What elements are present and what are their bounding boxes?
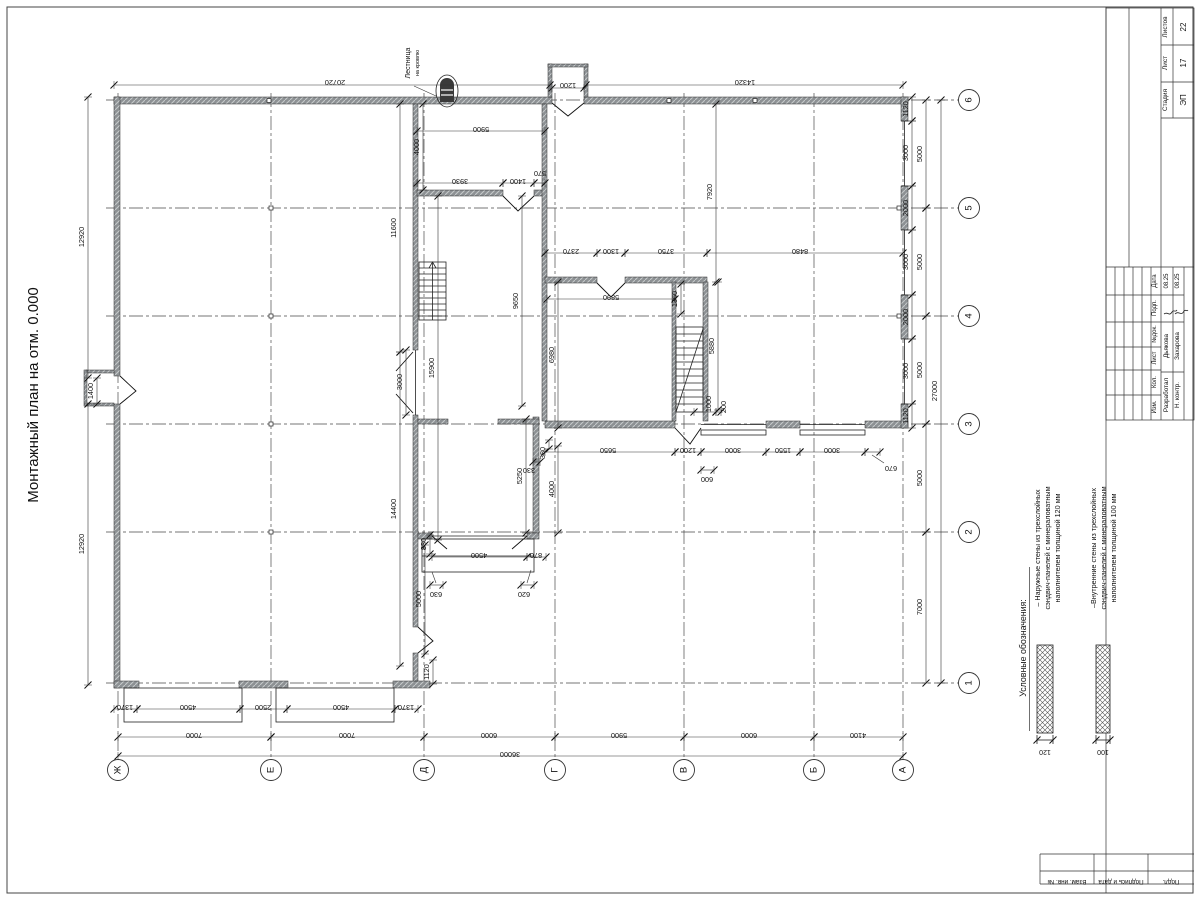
dimension: 7000 <box>915 529 930 687</box>
stamp-row1-date: 08.25 <box>1164 273 1170 289</box>
leader-lines <box>432 455 884 583</box>
dimension: 5880 <box>707 279 722 414</box>
page-title: Монтажный план на отм. 0.000 <box>25 287 42 503</box>
dim-label: 11600 <box>389 218 398 238</box>
axis-bubble-label: Б <box>809 767 820 773</box>
dim-label: 5000 <box>915 362 924 378</box>
strip-podl: Подл. <box>1162 878 1179 885</box>
dimension: 670 <box>862 448 898 473</box>
legend-wall-symbol-outer: 120 <box>1034 645 1057 755</box>
dim-label: 7000 <box>915 599 924 615</box>
dim-label: 9650 <box>511 293 520 309</box>
dim-label: 1300 <box>603 247 619 256</box>
legend-wall-symbol-inner: 100 <box>1093 645 1114 755</box>
dimension: 1370 <box>111 703 141 713</box>
axis-bubble-label: 3 <box>964 421 975 426</box>
dim-label: 2000 <box>901 200 910 216</box>
axis-bubble-label: Д <box>419 766 430 773</box>
axis-bubble-label: Г <box>550 767 561 772</box>
axis-col-В: В <box>674 93 695 781</box>
dim-label: 600 <box>701 475 713 484</box>
dimension: 7920 <box>705 101 720 286</box>
stamp-rev-ndok: №док. <box>1151 325 1158 343</box>
stamp-list-value: 17 <box>1179 58 1188 67</box>
dim-label: 3000 <box>725 446 741 455</box>
stamp-listov-label: Листов <box>1162 16 1169 38</box>
dimension: 2370 <box>542 247 601 257</box>
dim-label: 3000 <box>395 374 404 390</box>
stamp-rev-izm: Изм. <box>1152 400 1158 413</box>
axis-bubble-label: 6 <box>964 97 975 102</box>
strip-vzam-inv: Взам. инв. № <box>1047 878 1086 885</box>
dim-label: 4000 <box>547 481 556 497</box>
dim-label: 20720 <box>325 78 345 87</box>
legend-item2-thickness: 100 <box>1097 748 1109 755</box>
dim-label: 1370 <box>117 703 133 712</box>
dim-label: 12920 <box>77 534 86 554</box>
dim-label: 15900 <box>427 358 436 378</box>
dim-label: 870 <box>530 551 542 560</box>
stamp-row2-role: Н. контр. <box>1174 382 1181 408</box>
stamp-rev-list: Лист <box>1152 351 1158 364</box>
dim-label: 6000 <box>481 731 497 740</box>
dim-label: 3000 <box>901 254 910 270</box>
dimension: 630 <box>427 581 447 599</box>
dim-label: 1360 <box>670 291 679 307</box>
legend-item2-line2: сэндвич-панелей с минераловатным <box>1099 486 1108 609</box>
bottom-attribute-strip: Взам. инв. № Подпись и дата Подл. <box>1040 854 1194 885</box>
dim-label: 8480 <box>792 247 808 256</box>
dimension: 1370 <box>392 703 422 713</box>
stamp-listov-value: 22 <box>1179 22 1188 31</box>
dim-label: 620 <box>518 590 530 599</box>
stamp-stadiya-value: ЭП <box>1179 94 1188 106</box>
porch-and-docks <box>124 539 534 722</box>
dimension: 11600 <box>389 101 404 356</box>
dim-label: 4000 <box>412 139 421 155</box>
dim-label: 670 <box>885 464 897 473</box>
title-block: Листов 22 Лист 17 Стадия ЭП Дата Подп. №… <box>1106 8 1194 420</box>
dimension: 5900 <box>552 731 688 741</box>
legend-item1-thickness: 120 <box>1039 748 1051 755</box>
strip-podpis-data: Подпись и дата <box>1098 878 1144 885</box>
dim-label: 5900 <box>611 731 627 740</box>
dim-label: 2370 <box>563 247 579 256</box>
dim-label: 3000 <box>901 145 910 161</box>
dimension: 1200 <box>672 446 705 456</box>
stamp-row2-name: Захарова <box>1174 332 1181 360</box>
stamp-rev-kol: Кол. <box>1152 376 1158 388</box>
dimension: 4500 <box>284 703 399 713</box>
dim-label: 2500 <box>255 703 271 712</box>
stamp-row2-date: 08.25 <box>1175 273 1181 289</box>
dim-label: 3000 <box>824 446 840 455</box>
axis-col-Б: Б <box>804 93 825 781</box>
axis-bubble-label: 2 <box>964 529 975 534</box>
dim-label: 3930 <box>452 177 468 186</box>
axis-bubble-label: Е <box>266 767 277 773</box>
stamp-row1-name: Дьякова <box>1163 333 1170 358</box>
dim-label: 1120 <box>422 664 431 680</box>
dim-label: 4500 <box>180 703 196 712</box>
walls <box>84 64 908 688</box>
dim-label: 4100 <box>850 731 866 740</box>
dim-label: 200 <box>719 401 728 413</box>
dimension: 27000 <box>930 97 945 687</box>
dim-label: 3750 <box>658 247 674 256</box>
dimension: 5000 <box>915 205 930 320</box>
dim-label: 1370 <box>398 703 414 712</box>
dim-label: 5000 <box>915 146 924 162</box>
dimension: 200 <box>713 401 729 416</box>
stamp-row1-role: Разработал <box>1162 378 1170 413</box>
roof-ladder-note-line1: Лестница <box>405 47 412 78</box>
dimension: 620 <box>518 581 538 599</box>
dimension: 3000 <box>698 446 770 456</box>
dimension: 5250 <box>515 416 530 537</box>
dimension: 5000 <box>915 421 930 536</box>
dimension: 3750 <box>622 247 711 257</box>
staircase-2 <box>676 327 703 412</box>
staircase-1 <box>419 262 446 320</box>
dim-label: 5250 <box>515 468 524 484</box>
stamp-rev-data: Дата <box>1152 274 1158 288</box>
legend-item2-line3: наполнителем толщиной 100 мм <box>1109 493 1118 602</box>
stamp-stadiya-label: Стадия <box>1162 88 1169 111</box>
dimension: 8480 <box>704 247 907 257</box>
dim-label: 380 <box>538 447 547 459</box>
dimension: 2500 <box>237 703 291 713</box>
door-swings <box>120 103 701 653</box>
dimension: 1300 <box>594 247 629 257</box>
dim-label: 1120 <box>901 408 910 424</box>
dimension: 3930 <box>414 177 507 187</box>
dim-label: 5000 <box>915 254 924 270</box>
dim-label: 5000 <box>915 470 924 486</box>
dimension: 4100 <box>811 731 907 741</box>
dimension: 5900 <box>414 125 549 135</box>
dimension: 12920 <box>77 401 92 689</box>
axis-bubble-label: А <box>898 766 909 773</box>
dim-label: 570 <box>534 169 546 178</box>
dimension: 15900 <box>427 193 442 544</box>
drawing-sheet: ЖЕДГВБА654321 <box>0 0 1200 900</box>
dimension: 380 <box>538 437 553 460</box>
dim-label: 5650 <box>600 446 616 455</box>
dim-label: 5880 <box>707 338 716 354</box>
dimension: 1400 <box>86 375 101 408</box>
dim-label: 7000 <box>186 731 202 740</box>
dim-label: 330 <box>523 466 535 475</box>
dim-label: 1120 <box>901 101 910 117</box>
dim-label: 7920 <box>705 184 714 200</box>
dim-label: 1000 <box>704 396 713 412</box>
dim-label: 5000 <box>414 591 423 607</box>
dimension: 14320 <box>583 78 907 89</box>
dimension: 9650 <box>511 193 526 410</box>
dimension: 870 <box>524 551 550 561</box>
dimension: 3000 <box>797 446 869 456</box>
dim-label: 3000 <box>901 363 910 379</box>
dimension: 6000 <box>421 731 559 741</box>
dimension: 6000 <box>681 731 818 741</box>
dim-label: 27000 <box>930 381 939 401</box>
dimension: 5000 <box>915 97 930 212</box>
axis-col-Е: Е <box>261 93 282 781</box>
dim-label: 4500 <box>471 551 487 560</box>
dim-label: 1200 <box>680 446 696 455</box>
axis-row-1: 1 <box>106 673 980 694</box>
dim-label: 1400 <box>510 177 526 186</box>
legend-item1-line1: – Наружные стены из трехслойных <box>1033 489 1042 607</box>
dim-label: 4500 <box>333 703 349 712</box>
dim-label: 14400 <box>389 499 398 519</box>
axis-row-2: 2 <box>106 522 980 543</box>
roof-ladder-note-line2: на кровлю <box>415 50 421 76</box>
axis-bubble-label: Ж <box>113 765 124 774</box>
dim-label: 2000 <box>901 309 910 325</box>
dimension: 7000 <box>268 731 428 741</box>
dim-label: 5900 <box>473 125 489 134</box>
legend-item1-line3: наполнителем толщиной 120 мм <box>1053 493 1062 602</box>
dimension: 7000 <box>115 731 275 741</box>
dim-label: 5890 <box>603 293 619 302</box>
dim-label: 12920 <box>77 227 86 247</box>
legend-heading: Условные обозначения: <box>1018 599 1028 696</box>
dim-label: 6980 <box>547 347 556 363</box>
dimension: 14400 <box>389 349 404 670</box>
dimension: 5000 <box>915 313 930 428</box>
dimension: 4500 <box>134 703 244 713</box>
dimension: 12920 <box>77 94 92 382</box>
dim-label: 7000 <box>339 731 355 740</box>
dimension: 1200 <box>549 81 588 92</box>
dim-label: 6000 <box>741 731 757 740</box>
axis-col-Г: Г <box>545 93 566 781</box>
axis-bubble-label: В <box>679 767 690 773</box>
dim-label: 14320 <box>735 78 755 87</box>
dimension: 600 <box>698 466 718 484</box>
dimension: 4000 <box>547 443 562 537</box>
dim-label: 1200 <box>560 81 576 90</box>
legend: Условные обозначения: – Наружные стены и… <box>1018 486 1118 755</box>
dimension: 6980 <box>547 279 562 432</box>
legend-item2-line1: –Внутренние стены из трехслойных <box>1089 488 1098 608</box>
dimension: 36000 <box>115 750 907 760</box>
dimension: 5650 <box>542 446 679 456</box>
axis-bubble-label: 5 <box>964 205 975 210</box>
dimension: 5890 <box>544 293 679 303</box>
axis-bubble-label: 4 <box>964 313 975 318</box>
stamp-list-label: Лист <box>1162 56 1169 70</box>
dim-label: 36000 <box>500 750 520 759</box>
stamp-rev-podp: Подп. <box>1152 300 1158 316</box>
dim-label: 880 <box>419 538 428 550</box>
axis-bubble-label: 1 <box>964 680 975 685</box>
legend-item1-line2: сэндвич-панелей с минераловатным <box>1043 486 1052 609</box>
dim-label: 630 <box>430 590 442 599</box>
dimension: 20720 <box>111 78 554 89</box>
dim-label: 1400 <box>86 383 95 399</box>
dim-label: 1550 <box>775 446 791 455</box>
